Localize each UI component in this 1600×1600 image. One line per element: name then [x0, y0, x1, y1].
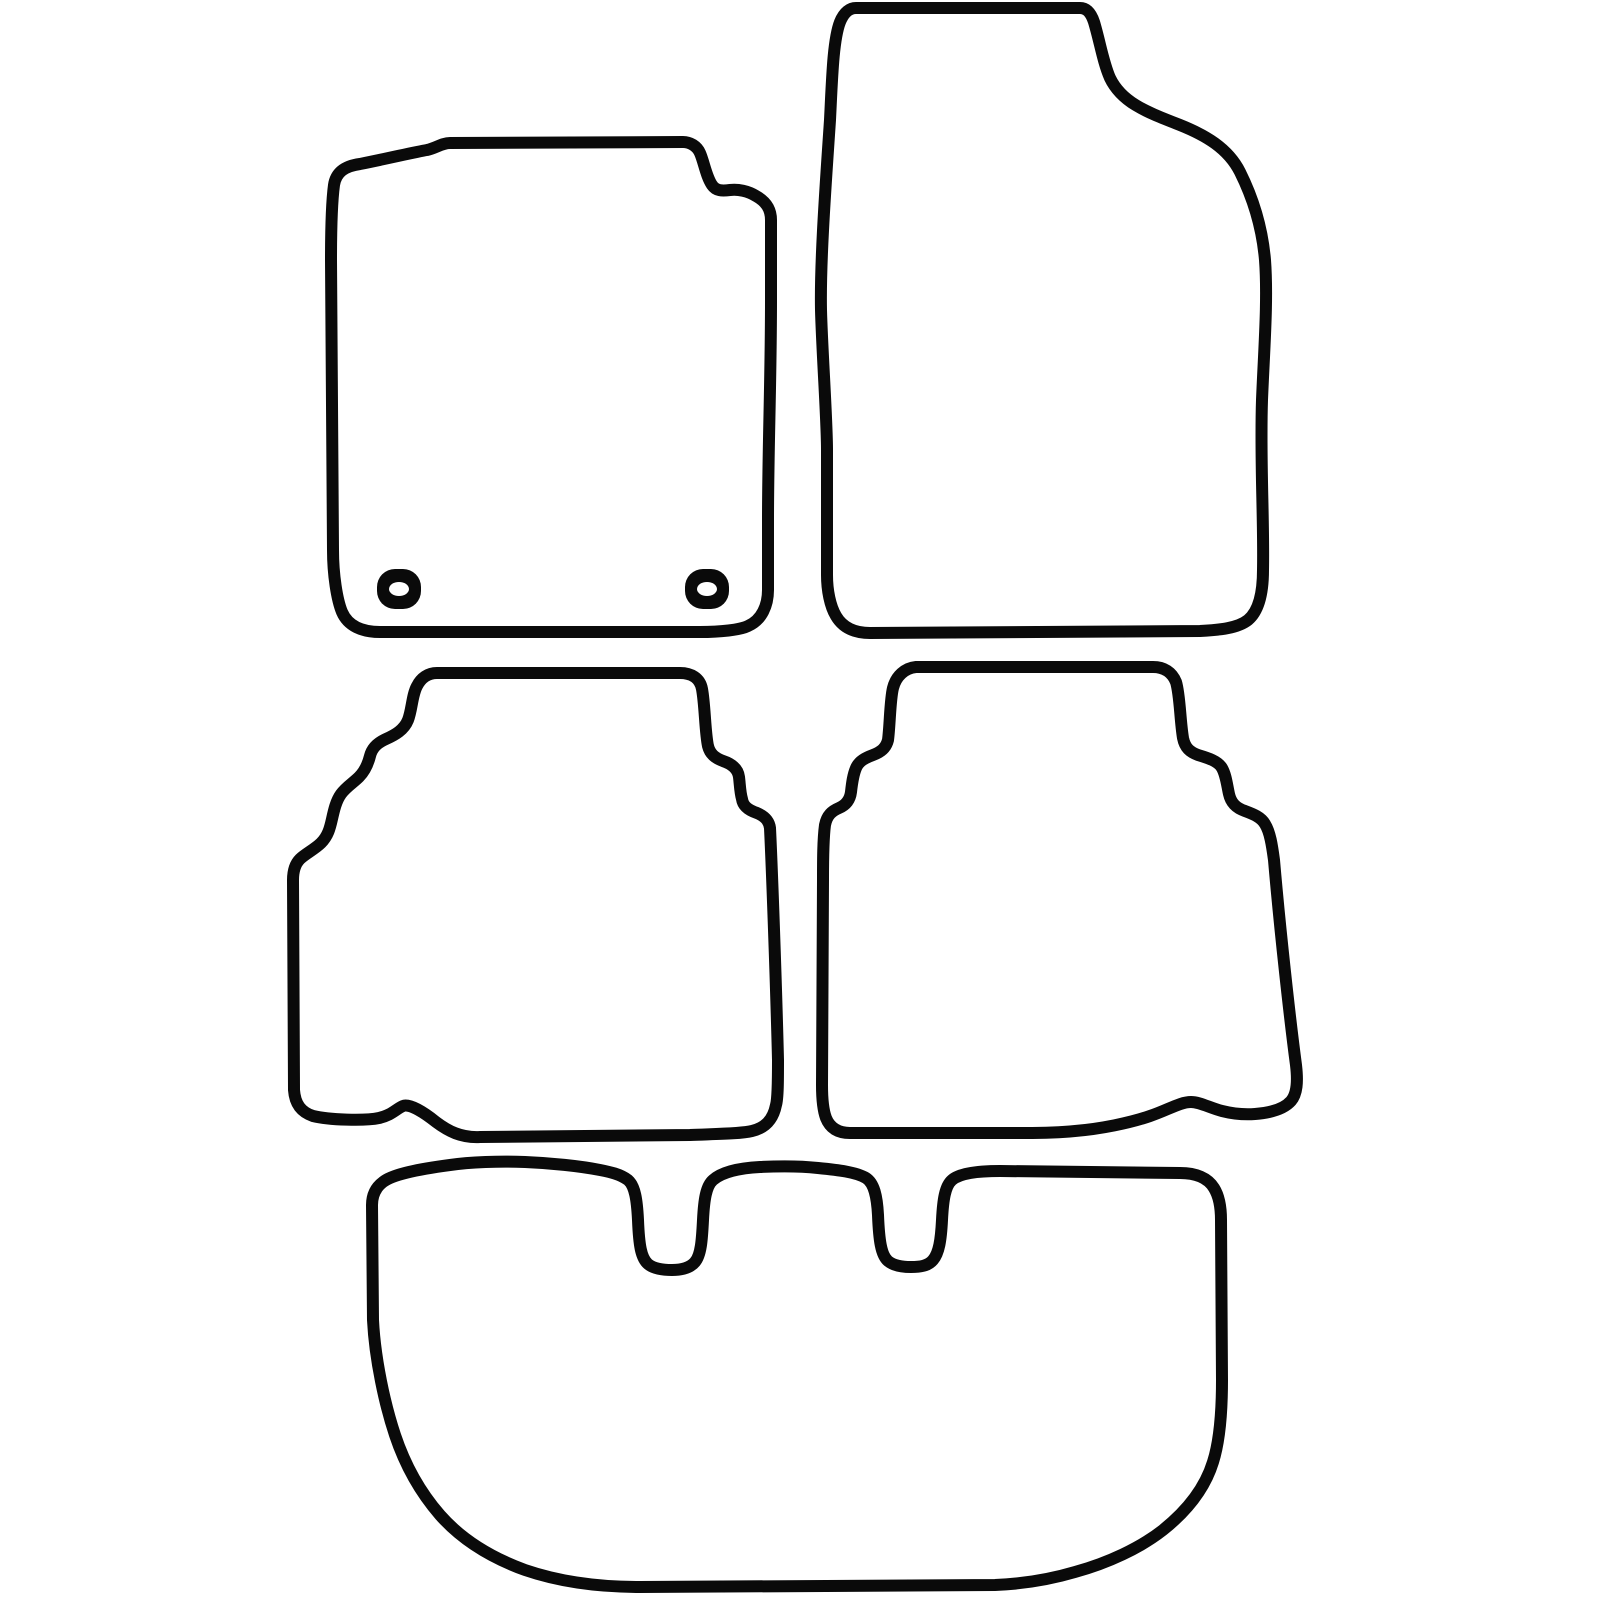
front-left-mat [331, 142, 771, 632]
front-left-mat-eyelet-right-hole [697, 582, 717, 596]
rear-left-mat [293, 673, 778, 1137]
car-mat-set-illustration [0, 0, 1600, 1600]
mats-canvas [0, 0, 1600, 1600]
front-left-mat-eyelet-left [377, 569, 421, 609]
front-left-mat-eyelet-left-hole [389, 582, 409, 596]
rear-right-mat [822, 667, 1297, 1133]
boot-mat [372, 1162, 1222, 1587]
front-left-mat-eyelet-right [685, 569, 729, 609]
front-right-mat [821, 8, 1266, 633]
